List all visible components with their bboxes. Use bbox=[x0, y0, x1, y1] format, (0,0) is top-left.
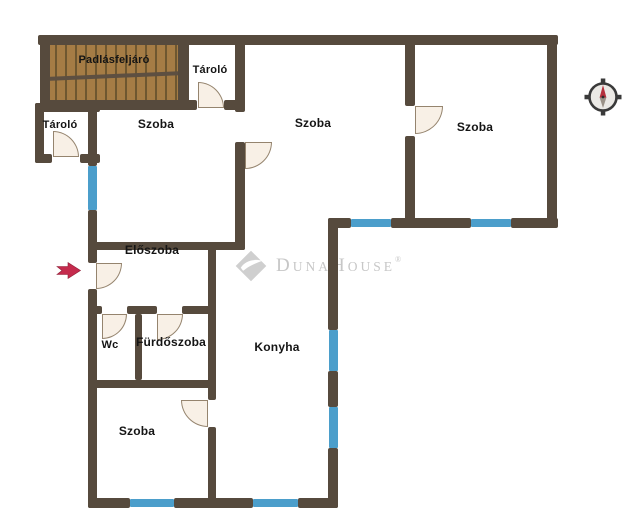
room-label-szoba-top-middle: Szoba bbox=[295, 116, 331, 130]
wall bbox=[328, 371, 338, 407]
room-label-wc: Wc bbox=[102, 339, 119, 351]
wall bbox=[208, 242, 216, 400]
wall bbox=[208, 427, 216, 508]
compass-icon bbox=[580, 74, 626, 120]
room-label-tarolo-left: Tároló bbox=[43, 119, 78, 131]
wall bbox=[88, 103, 97, 166]
room-label-szoba-top-right: Szoba bbox=[457, 120, 493, 134]
window bbox=[329, 330, 338, 371]
wall bbox=[178, 35, 189, 110]
wall bbox=[547, 35, 557, 228]
wall bbox=[127, 306, 157, 314]
wall bbox=[391, 218, 471, 228]
wall bbox=[328, 448, 338, 508]
room-label-eloszoba: Előszoba bbox=[125, 243, 179, 257]
door-arc bbox=[245, 142, 272, 169]
stairs-divider bbox=[45, 71, 185, 81]
room-label-szoba-top-left: Szoba bbox=[138, 117, 174, 131]
window bbox=[88, 166, 97, 210]
wall bbox=[405, 35, 415, 106]
window bbox=[253, 499, 298, 507]
door-arc bbox=[198, 82, 224, 108]
room-label-tarolo-top: Tároló bbox=[193, 64, 228, 76]
window bbox=[471, 219, 511, 227]
wall bbox=[35, 103, 44, 163]
wall bbox=[88, 289, 97, 508]
wall bbox=[405, 136, 415, 228]
floor-plan: DUNAHOUSE® Pa bbox=[0, 0, 640, 530]
door-arc bbox=[181, 400, 208, 427]
wall bbox=[40, 35, 50, 110]
wall bbox=[40, 100, 197, 110]
attic-stairs bbox=[44, 40, 185, 106]
wall bbox=[88, 210, 97, 263]
wall bbox=[38, 35, 558, 45]
wall bbox=[88, 380, 216, 388]
door-arc bbox=[53, 131, 79, 157]
door-arc bbox=[415, 106, 443, 134]
window bbox=[130, 499, 174, 507]
wall bbox=[328, 218, 338, 330]
dunahouse-watermark-text: DUNAHOUSE® bbox=[276, 255, 401, 277]
wall bbox=[235, 35, 245, 112]
room-label-padlasfeljaro: Padlásfeljáró bbox=[78, 54, 149, 66]
dunahouse-watermark: DUNAHOUSE® bbox=[234, 247, 401, 285]
wall bbox=[235, 142, 245, 250]
window bbox=[329, 407, 338, 448]
room-label-szoba-bottom: Szoba bbox=[119, 424, 155, 438]
door-arc bbox=[96, 263, 122, 289]
door-arc bbox=[102, 314, 127, 339]
room-label-furdoszoba: Fürdőszoba bbox=[136, 335, 206, 349]
window bbox=[351, 219, 391, 227]
dunahouse-diamond-logo bbox=[234, 249, 268, 283]
entrance-arrow-icon bbox=[56, 261, 82, 280]
room-label-konyha: Konyha bbox=[254, 340, 299, 354]
